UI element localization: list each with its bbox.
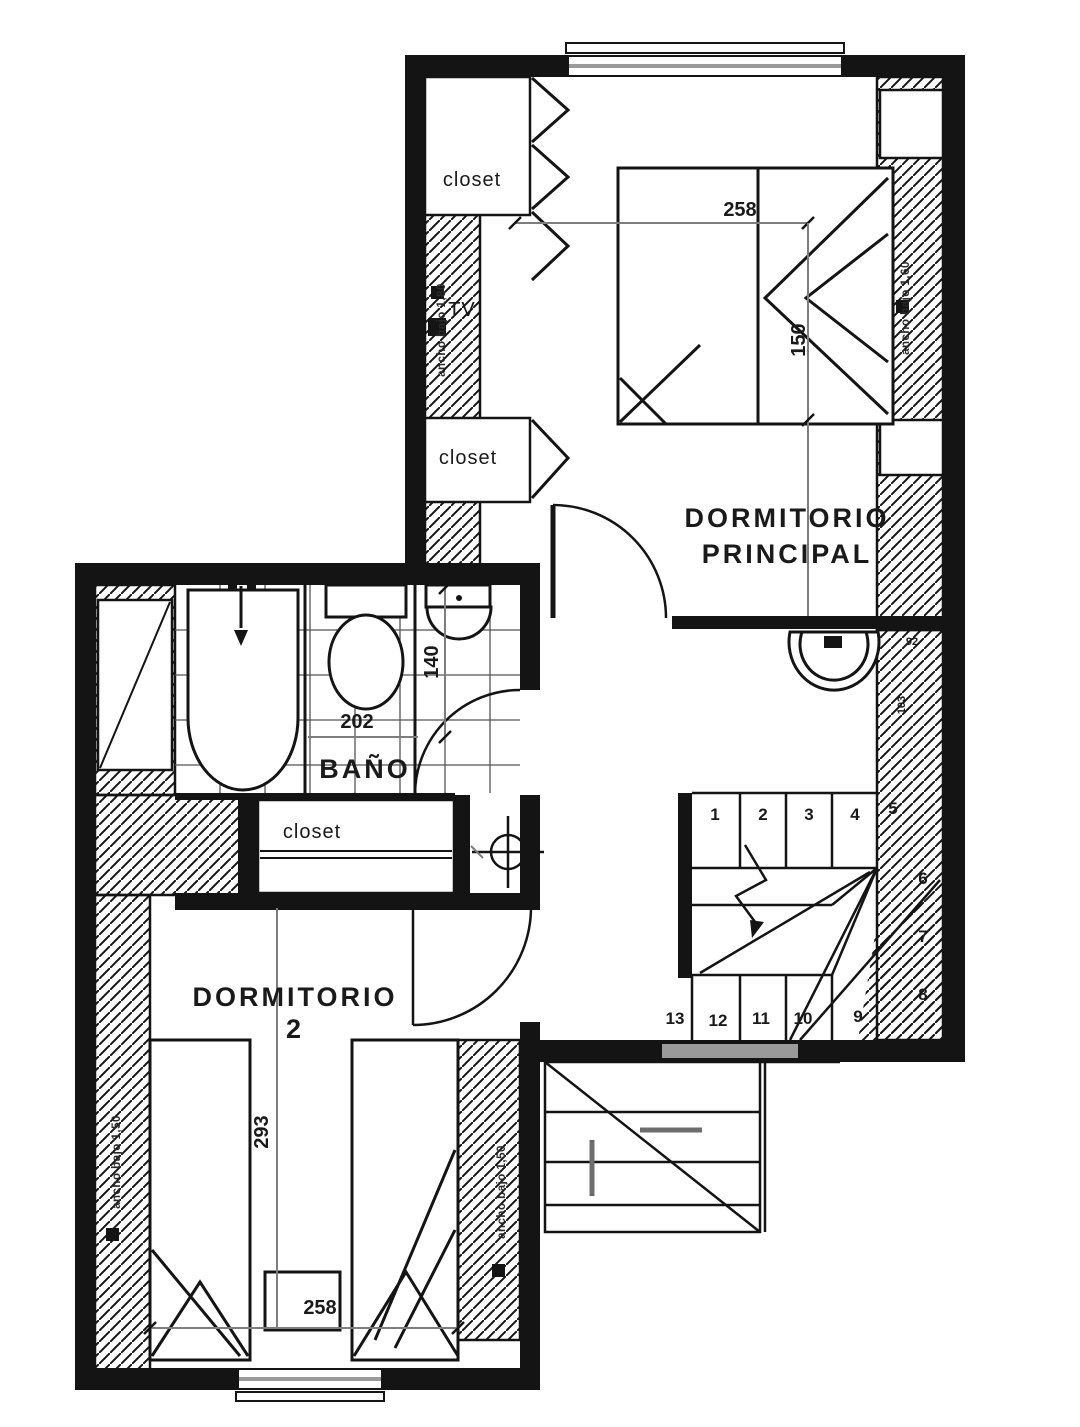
stair-number-11: 11 bbox=[752, 1009, 770, 1028]
closet-label-hall: closet bbox=[283, 821, 341, 843]
stair-number-13: 13 bbox=[666, 1009, 685, 1028]
toilet-icon bbox=[326, 585, 406, 709]
stair-number-9: 9 bbox=[853, 1007, 862, 1026]
balcony bbox=[545, 1062, 840, 1232]
dorm2-door bbox=[413, 907, 531, 1025]
hall-sink-icon bbox=[789, 632, 879, 690]
dim-niche-depth: 103 bbox=[896, 696, 908, 714]
stair-number-2: 2 bbox=[758, 805, 767, 824]
floor-plan-drawing: DORMITORIO PRINCIPAL BAÑO DORMITORIO 2 c… bbox=[0, 0, 1080, 1427]
dorm2-bed-left bbox=[150, 1040, 250, 1360]
stair-number-6: 6 bbox=[918, 869, 927, 888]
stair-number-8: 8 bbox=[918, 985, 927, 1004]
dim-master-width: 258 bbox=[723, 199, 756, 221]
floor-plan-page: DORMITORIO PRINCIPAL BAÑO DORMITORIO 2 c… bbox=[0, 0, 1080, 1427]
room-label-dorm2-1: DORMITORIO bbox=[193, 982, 398, 1012]
dim-dorm2-depth: 293 bbox=[251, 1115, 273, 1148]
room-label-master-2: PRINCIPAL bbox=[702, 539, 873, 569]
closet-bifold-doors bbox=[532, 78, 568, 498]
bath-window bbox=[98, 600, 172, 770]
wall-note-master-right: ancho bajo 1,60 bbox=[900, 261, 912, 355]
stair-number-5: 5 bbox=[888, 799, 897, 818]
dim-bath-width: 202 bbox=[340, 711, 373, 733]
room-label-master-1: DORMITORIO bbox=[685, 503, 890, 533]
closet-label-master-mid: closet bbox=[439, 447, 497, 469]
closet-label-master-top: closet bbox=[443, 169, 501, 191]
dim-bath-depth: 140 bbox=[421, 645, 443, 678]
dim-niche-width: 92 bbox=[906, 636, 918, 648]
stair-number-4: 4 bbox=[850, 805, 860, 824]
hall-closet bbox=[258, 800, 454, 893]
tv-label: TV bbox=[448, 299, 476, 321]
master-door bbox=[553, 505, 666, 618]
bathtub-icon bbox=[188, 582, 298, 790]
stair-number-3: 3 bbox=[804, 805, 813, 824]
bath-door-arc bbox=[415, 690, 520, 793]
dim-dorm2-width: 258 bbox=[303, 1297, 336, 1319]
sink-icon bbox=[426, 585, 491, 639]
dorm2-bed-right bbox=[352, 1040, 458, 1360]
stair-number-10: 10 bbox=[794, 1009, 813, 1028]
dorm2-right-wall-band bbox=[458, 1040, 520, 1340]
room-label-dorm2-2: 2 bbox=[286, 1014, 304, 1044]
wall-note-dorm2-right: ancho bajo 1,50 bbox=[496, 1145, 508, 1239]
wall-note-dorm2-left: ancho bajo 1,50 bbox=[111, 1115, 123, 1209]
stair-number-1: 1 bbox=[710, 805, 719, 824]
stair-number-7: 7 bbox=[918, 927, 927, 946]
stair-number-12: 12 bbox=[709, 1011, 728, 1030]
dim-master-bed: 150 bbox=[788, 323, 810, 356]
wall-note-master-left: ancho bajo 1,80 bbox=[436, 283, 448, 377]
room-label-bath: BAÑO bbox=[319, 753, 411, 784]
